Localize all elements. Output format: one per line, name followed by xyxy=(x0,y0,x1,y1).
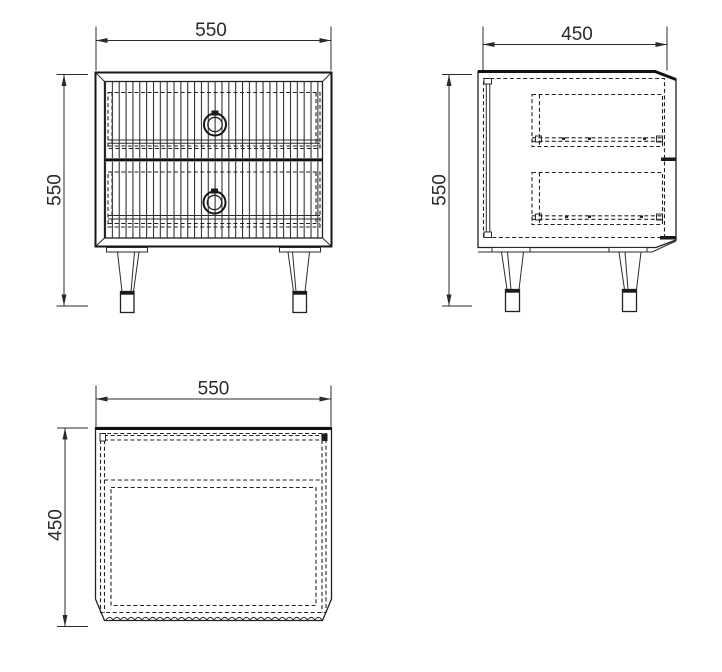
technical-drawing-canvas: 550 550 xyxy=(0,0,722,672)
front-leg-right xyxy=(280,248,321,313)
top-outline xyxy=(96,428,332,621)
side-view: 450 550 xyxy=(430,24,677,312)
front-view: 550 550 xyxy=(45,20,332,313)
side-depth-label: 450 xyxy=(561,24,593,45)
top-depth-dimension: 450 xyxy=(46,428,89,627)
side-back-panel xyxy=(484,79,492,238)
side-height-label: 550 xyxy=(430,174,451,206)
side-height-dimension: 550 xyxy=(430,75,473,307)
front-height-label: 550 xyxy=(45,174,66,206)
top-drawer-box xyxy=(105,480,323,606)
side-leg-right xyxy=(609,248,647,312)
top-width-label: 550 xyxy=(198,379,230,400)
side-drawer-box-lower xyxy=(532,173,663,225)
top-view: 550 450 xyxy=(46,379,332,627)
front-leg-left xyxy=(107,248,148,313)
side-drawer-box-upper xyxy=(532,95,663,147)
front-height-dimension: 550 xyxy=(45,75,89,307)
top-fluting-scallops xyxy=(106,617,322,620)
front-width-label: 550 xyxy=(195,20,227,41)
drawing-sheet: 550 550 xyxy=(0,0,722,672)
front-width-dimension: 550 xyxy=(96,20,331,71)
side-depth-dimension: 450 xyxy=(483,24,667,71)
top-width-dimension: 550 xyxy=(96,379,331,427)
side-leg-left xyxy=(492,248,530,312)
top-back-panel xyxy=(100,434,328,442)
top-depth-label: 450 xyxy=(46,509,67,541)
